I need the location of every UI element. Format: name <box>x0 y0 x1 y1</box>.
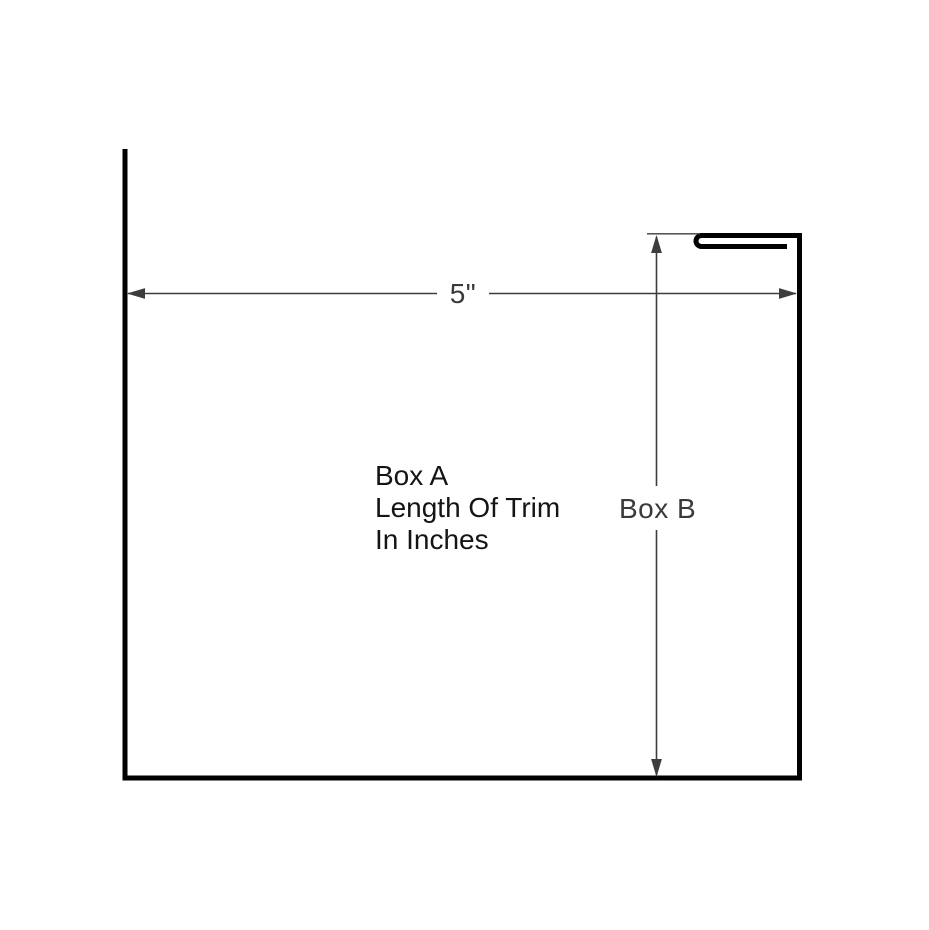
box-a-note: Box A Length Of Trim In Inches <box>375 460 560 556</box>
arrowhead-down-icon <box>651 759 662 777</box>
box-a-note-line3: In Inches <box>375 524 560 556</box>
arrowhead-left-icon <box>127 288 145 299</box>
trim-diagram-canvas: 5" Box B Box A Length Of Trim In Inches <box>0 0 929 930</box>
arrowhead-up-icon <box>651 235 662 253</box>
box-a-note-line2: Length Of Trim <box>375 492 560 524</box>
box-a-note-line1: Box A <box>375 460 560 492</box>
width-dimension-label: 5" <box>436 278 490 310</box>
arrowhead-right-icon <box>779 288 797 299</box>
box-b-label: Box B <box>619 493 696 525</box>
